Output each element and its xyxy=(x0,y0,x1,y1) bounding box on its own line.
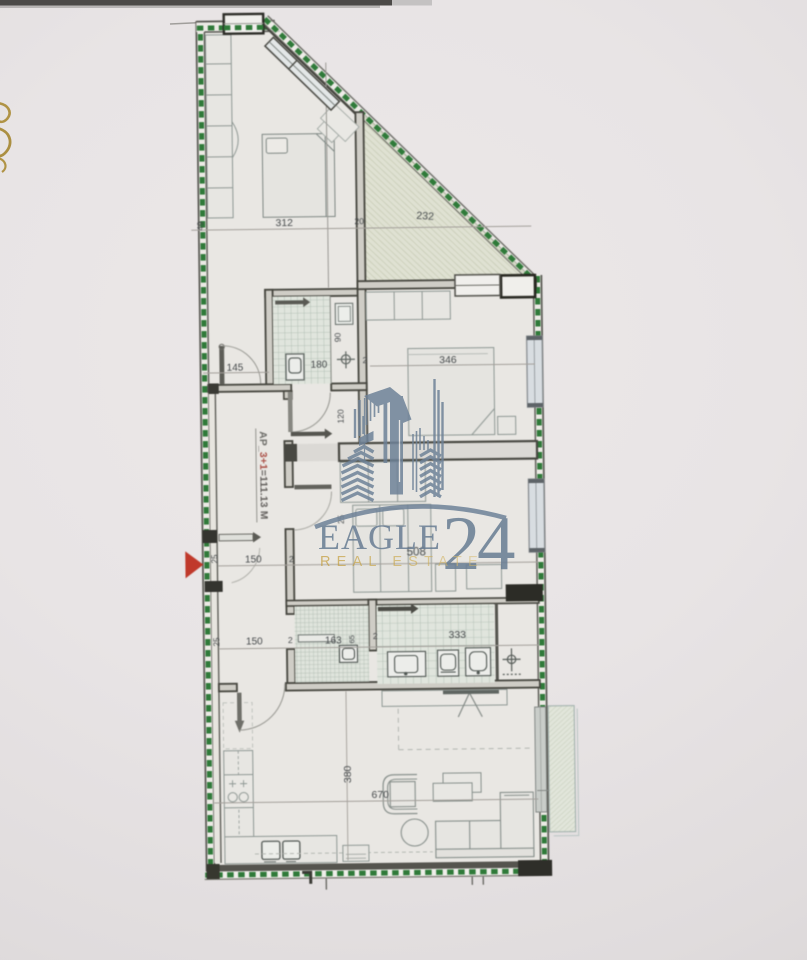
svg-text:2: 2 xyxy=(373,631,378,641)
svg-text:25: 25 xyxy=(210,554,219,564)
svg-text:2: 2 xyxy=(289,554,294,564)
svg-text:25: 25 xyxy=(212,637,221,647)
svg-text:380: 380 xyxy=(342,765,354,783)
svg-text:145: 145 xyxy=(227,363,244,374)
svg-text:49: 49 xyxy=(195,221,205,231)
svg-text:163: 163 xyxy=(325,635,342,646)
svg-text:90: 90 xyxy=(333,332,343,342)
svg-text:232: 232 xyxy=(416,210,434,223)
svg-text:2: 2 xyxy=(288,635,293,645)
svg-text:120: 120 xyxy=(335,409,345,424)
svg-text:20: 20 xyxy=(354,216,364,226)
svg-text:346: 346 xyxy=(439,354,457,366)
svg-text:150: 150 xyxy=(245,554,262,565)
svg-text:REAL ESTATE: REAL ESTATE xyxy=(320,554,484,570)
svg-text:24: 24 xyxy=(442,500,515,586)
svg-text:670: 670 xyxy=(371,789,389,801)
svg-text:150: 150 xyxy=(246,636,263,647)
svg-text:333: 333 xyxy=(448,629,466,641)
svg-text:AP_3+1=111.13 M: AP_3+1=111.13 M xyxy=(257,431,269,519)
svg-text:312: 312 xyxy=(275,217,293,229)
svg-text:2: 2 xyxy=(362,355,367,365)
svg-text:180: 180 xyxy=(311,360,328,371)
svg-text:EAGLE: EAGLE xyxy=(318,517,441,557)
svg-text:65: 65 xyxy=(347,635,356,643)
